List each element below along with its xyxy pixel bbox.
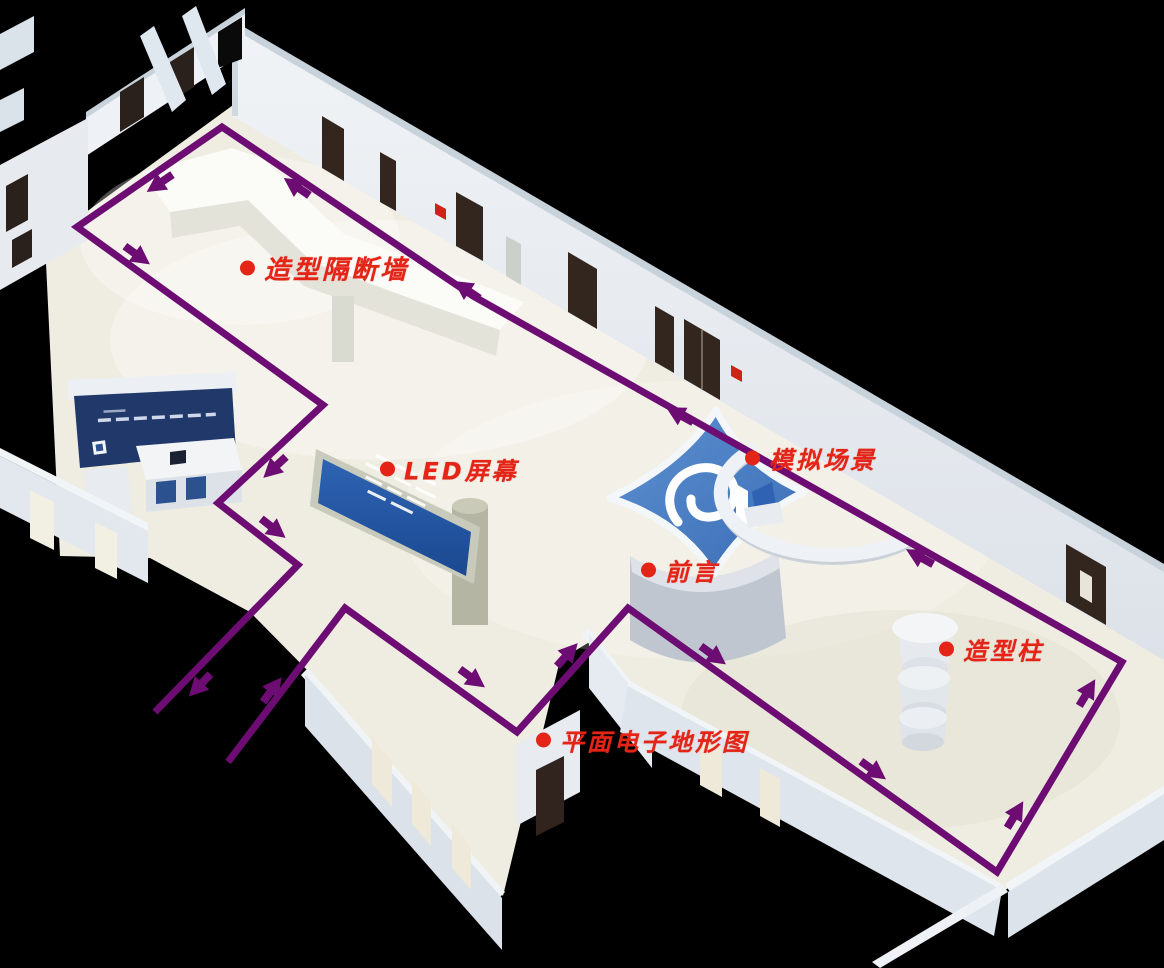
door-icon bbox=[655, 306, 674, 373]
door-icon bbox=[380, 152, 396, 211]
floorplan-3d-scene bbox=[0, 0, 1164, 968]
sign-logo-icon bbox=[92, 440, 107, 455]
desk-monitor-icon bbox=[170, 450, 186, 465]
door-icon bbox=[536, 756, 564, 836]
exhibition-hall-rendering: 造型隔断墙LED屏幕模拟场景前言造型柱平面电子地形图 bbox=[0, 0, 1164, 968]
